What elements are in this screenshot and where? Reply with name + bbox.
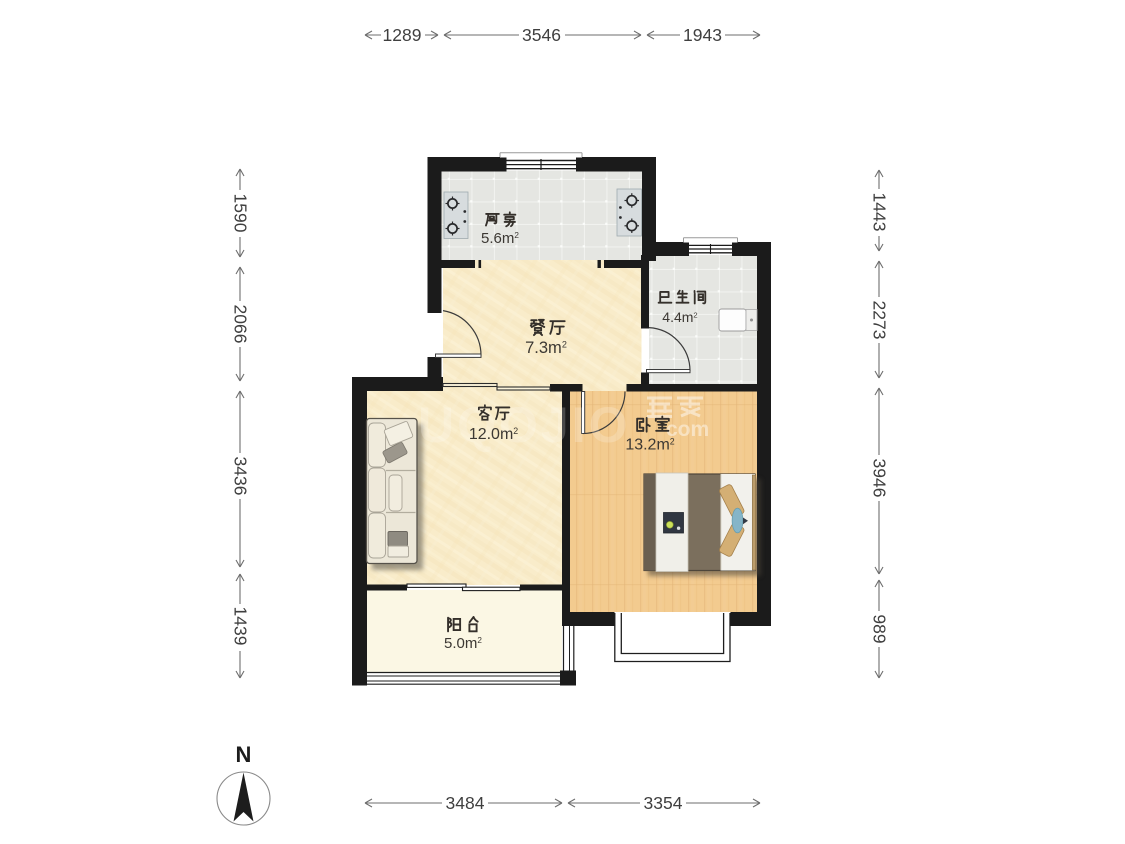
svg-text:3546: 3546 [522,25,561,45]
svg-text:3946: 3946 [870,459,890,498]
svg-text:N: N [236,742,252,767]
svg-text:12.0m2: 12.0m2 [469,426,518,443]
svg-text:3354: 3354 [644,793,683,813]
svg-text:5.0m2: 5.0m2 [444,635,482,652]
svg-text:1289: 1289 [383,25,422,45]
svg-text:1590: 1590 [231,194,251,233]
svg-text:13.2m2: 13.2m2 [625,436,674,453]
svg-text:7.3m2: 7.3m2 [525,339,567,357]
svg-text:1943: 1943 [683,25,722,45]
svg-text:4.4m2: 4.4m2 [662,309,697,325]
svg-text:5.6m2: 5.6m2 [481,230,519,247]
svg-text:1443: 1443 [870,193,890,232]
svg-text:989: 989 [870,614,890,643]
svg-text:3484: 3484 [446,793,485,813]
svg-text:2273: 2273 [870,301,890,340]
svg-text:1439: 1439 [231,607,251,646]
svg-text:UQOJIO: UQOJIO [418,397,630,453]
svg-text:2066: 2066 [231,305,251,344]
svg-text:3436: 3436 [231,457,251,496]
